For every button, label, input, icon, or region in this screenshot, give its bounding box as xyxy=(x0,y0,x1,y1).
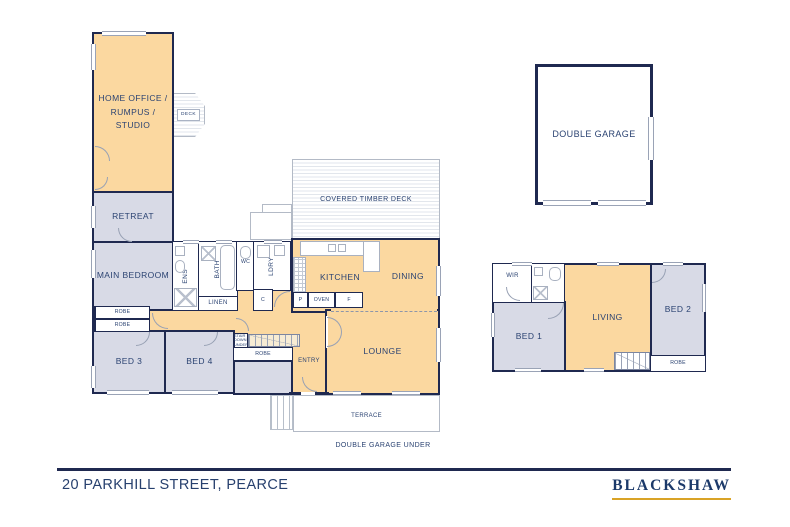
kitchen-label: KITCHEN xyxy=(320,272,360,282)
laundry-label: LDRY xyxy=(267,257,277,276)
room-bed4: BED 4 xyxy=(164,330,235,394)
window xyxy=(172,390,218,395)
entry-door-gap xyxy=(301,392,315,395)
stair-note-label: STAIR DOWN UNDER xyxy=(234,334,248,348)
room-double-garage: DOUBLE GARAGE xyxy=(535,64,653,205)
kitchen-sink-bench xyxy=(293,257,306,293)
window xyxy=(333,391,361,395)
home-office-label: HOME OFFICE / RUMPUS / STUDIO xyxy=(99,92,168,133)
stair-note: STAIR DOWN UNDER xyxy=(234,333,248,348)
garage-under-label: DOUBLE GARAGE UNDER xyxy=(335,442,430,449)
robe-main-2: ROBE xyxy=(95,319,150,332)
window xyxy=(107,390,149,395)
garage-door-opening xyxy=(598,200,646,206)
stairs-down xyxy=(248,334,300,347)
fridge: F xyxy=(335,292,363,308)
deck-landing xyxy=(250,212,292,240)
toilet-icon xyxy=(549,267,561,281)
window xyxy=(102,31,146,36)
window xyxy=(597,262,619,266)
window xyxy=(392,391,420,395)
bed3-label: BED 3 xyxy=(116,355,143,369)
window xyxy=(512,262,532,266)
room-retreat: RETREAT xyxy=(92,191,174,243)
terrace: TERRACE xyxy=(293,395,440,432)
dining-lounge-divider xyxy=(331,311,437,312)
bed1-label: BED 1 xyxy=(516,330,543,344)
terrace-label: TERRACE xyxy=(351,412,382,422)
bathtub-icon xyxy=(220,245,235,290)
unit-stairs xyxy=(614,352,650,370)
wc-label: WC xyxy=(241,258,250,266)
window xyxy=(491,313,495,337)
kitchen-appliance-tower xyxy=(363,241,380,272)
window xyxy=(702,284,706,312)
window xyxy=(436,266,441,296)
cooktop-icon xyxy=(328,244,336,252)
linen-label: LINEN xyxy=(208,299,227,309)
side-deck-label: DECK xyxy=(177,109,200,121)
laundry-tub-icon xyxy=(274,245,285,256)
robe-bed4: ROBE xyxy=(233,347,293,361)
room-home-office: HOME OFFICE / RUMPUS / STUDIO xyxy=(92,32,174,193)
robe-label: ROBE xyxy=(670,359,686,367)
room-under-stair xyxy=(233,360,293,395)
footer-divider xyxy=(57,468,731,471)
oven-label: OVEN xyxy=(314,296,330,304)
garage-side-door xyxy=(648,117,654,160)
window xyxy=(663,262,683,266)
window xyxy=(436,328,441,362)
pantry: P xyxy=(293,292,308,308)
cupboard-label: C xyxy=(261,296,265,304)
window xyxy=(515,368,541,372)
window xyxy=(216,240,232,244)
basin-icon xyxy=(534,267,543,276)
window xyxy=(584,368,604,372)
living-label: LIVING xyxy=(592,311,622,325)
window xyxy=(264,240,282,244)
pantry-label: P xyxy=(299,296,303,304)
window xyxy=(91,250,96,278)
shower-icon xyxy=(174,288,197,307)
retreat-label: RETREAT xyxy=(112,210,154,224)
dining-label: DINING xyxy=(392,271,424,281)
dining-label-wrap: DINING xyxy=(378,266,438,284)
washer-icon xyxy=(257,245,270,258)
lounge-label: LOUNGE xyxy=(363,345,401,359)
window xyxy=(91,206,96,228)
hall-cupboard: C xyxy=(253,289,273,311)
basin-icon xyxy=(175,246,185,256)
window xyxy=(91,366,96,388)
main-bedroom-label: MAIN BEDROOM xyxy=(97,269,169,283)
brand-logo: BLACKSHAW xyxy=(540,477,731,500)
covered-timber-deck: COVERED TIMBER DECK xyxy=(292,159,440,240)
room-main-bedroom: MAIN BEDROOM xyxy=(92,241,174,311)
robe-bed2: ROBE xyxy=(650,355,706,372)
toilet-icon xyxy=(175,260,185,273)
wir-label: WIR xyxy=(506,272,519,282)
terrace-steps xyxy=(270,395,293,430)
window xyxy=(183,240,199,244)
garage-door-opening xyxy=(543,200,591,206)
shower-icon xyxy=(201,246,216,261)
side-deck: DECK xyxy=(172,93,205,137)
cooktop-icon xyxy=(338,244,346,252)
oven: OVEN xyxy=(308,292,335,308)
toilet-icon xyxy=(240,246,251,259)
floorplan-canvas: COVERED TIMBER DECK DECK TERRACE DOUBLE … xyxy=(0,0,790,527)
covered-timber-deck-label: COVERED TIMBER DECK xyxy=(320,194,412,205)
shower-icon xyxy=(533,286,548,300)
bed4-label: BED 4 xyxy=(186,355,213,369)
fridge-label: F xyxy=(347,296,350,304)
double-garage-label: DOUBLE GARAGE xyxy=(552,127,635,141)
property-address: 20 PARKHILL STREET, PEARCE xyxy=(62,477,288,493)
deck-step xyxy=(262,204,292,213)
garage-under-note: DOUBLE GARAGE UNDER xyxy=(300,434,466,452)
robe-label: ROBE xyxy=(115,308,131,316)
bed2-label: BED 2 xyxy=(665,303,692,317)
linen-cupboard: LINEN xyxy=(198,296,238,311)
brand-logo-text: BLACKSHAW xyxy=(612,477,731,500)
robe-main-1: ROBE xyxy=(95,306,150,319)
entry-label: ENTRY xyxy=(298,357,320,367)
room-bed3: BED 3 xyxy=(92,330,166,394)
room-lounge: LOUNGE xyxy=(325,309,440,395)
robe-label: ROBE xyxy=(115,321,131,329)
window xyxy=(91,44,96,70)
robe-label: ROBE xyxy=(255,350,271,358)
